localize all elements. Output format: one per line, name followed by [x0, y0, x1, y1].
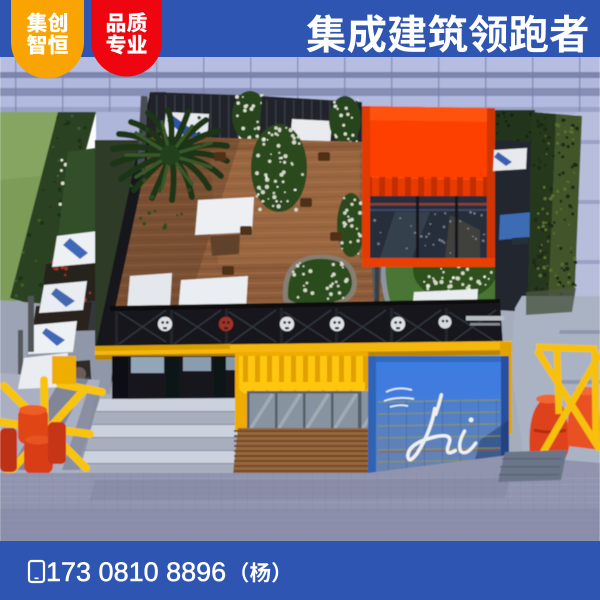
svg-text:173 0810 8896: 173 0810 8896 [46, 557, 226, 587]
